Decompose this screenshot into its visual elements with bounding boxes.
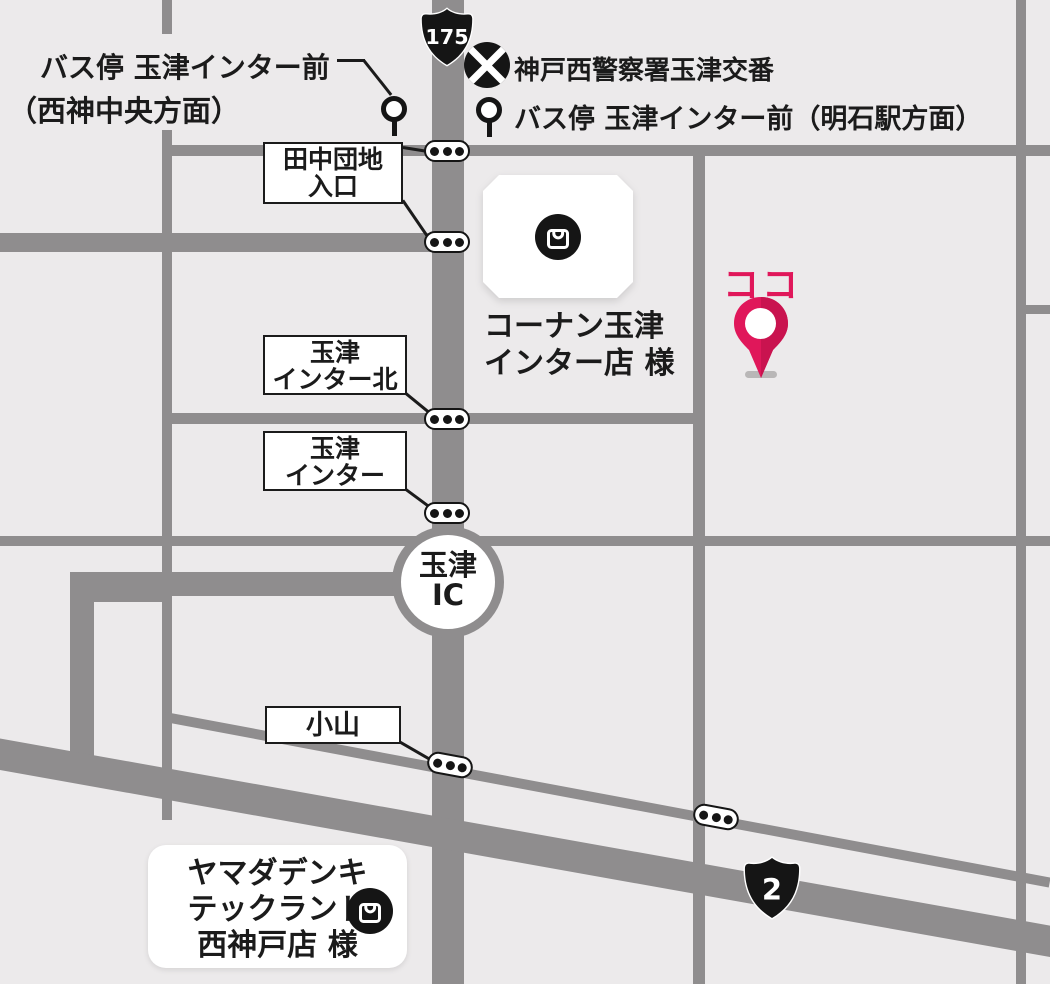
bus-stop-west-label-line1: バス停 玉津インター前	[40, 46, 330, 86]
bus-stop-ring	[476, 97, 502, 123]
bus-stop-icon-west	[380, 96, 408, 136]
shop-bag-icon	[347, 888, 393, 934]
bus-stop-ring	[381, 96, 407, 122]
bus-stop-pole	[392, 121, 397, 136]
bus-stop-east-label: バス停 玉津インター前（明石駅方面）	[514, 97, 982, 136]
road-horizontal-ic	[0, 536, 1050, 546]
route-2-number: 2	[762, 873, 782, 907]
intersection-name: 田中団地	[283, 145, 383, 174]
bus-stop-pole	[487, 122, 492, 137]
road-center-vertical	[693, 150, 705, 984]
traffic-signal-icon	[424, 140, 470, 162]
konan-store-label: コーナン玉津 インター店 様	[484, 308, 674, 382]
bus-stop-west-label-line2: （西神中央方面）	[8, 88, 240, 130]
intersection-name: インター北	[272, 365, 397, 394]
road-left-vertical-stub	[162, 0, 172, 34]
road-horizontal-thick-west	[0, 233, 448, 252]
route-175-number: 175	[425, 25, 468, 49]
map-canvas: バス停 玉津インター前 （西神中央方面） 神戸西警察署玉津交番 バス停 玉津イン…	[0, 0, 1050, 984]
traffic-signal-icon	[424, 502, 470, 524]
intersection-name: 入口	[308, 172, 358, 201]
intersection-name: 玉津	[310, 434, 360, 463]
bus-stop-icon-east	[475, 97, 503, 137]
leader-busstop-west-b	[363, 59, 392, 95]
leader-tanaka-signal2	[402, 200, 428, 237]
road-small-connector	[94, 596, 168, 602]
intersection-name: 小山	[306, 710, 360, 741]
ic-name-line2: IC	[401, 580, 495, 610]
intersection-name: インター	[285, 461, 385, 490]
traffic-signal-icon	[424, 231, 470, 253]
intersection-label-tamatsu-inter-kita: 玉津 インター北	[263, 335, 407, 395]
intersection-label-tanaka-danchi: 田中団地 入口	[263, 142, 403, 204]
here-pin-icon	[732, 296, 790, 382]
tamatsu-ic-badge: 玉津 IC	[392, 526, 504, 638]
traffic-signal-icon	[424, 408, 470, 430]
road-right-east-stub	[1022, 305, 1050, 314]
shop-bag-icon	[535, 214, 581, 260]
intersection-label-tamatsu-inter: 玉津 インター	[263, 431, 407, 491]
intersection-label-koyama: 小山	[265, 706, 401, 744]
route-175-shield-icon: 175	[420, 6, 474, 68]
road-thick-west-vertical	[70, 572, 94, 775]
leader-inter-kita	[405, 392, 429, 412]
intersection-name: 玉津	[310, 338, 360, 367]
route-2-shield-icon: 2	[743, 856, 801, 920]
ic-name-line1: 玉津	[401, 550, 495, 580]
leader-busstop-west-a	[337, 59, 365, 62]
police-station-label: 神戸西警察署玉津交番	[514, 50, 774, 87]
